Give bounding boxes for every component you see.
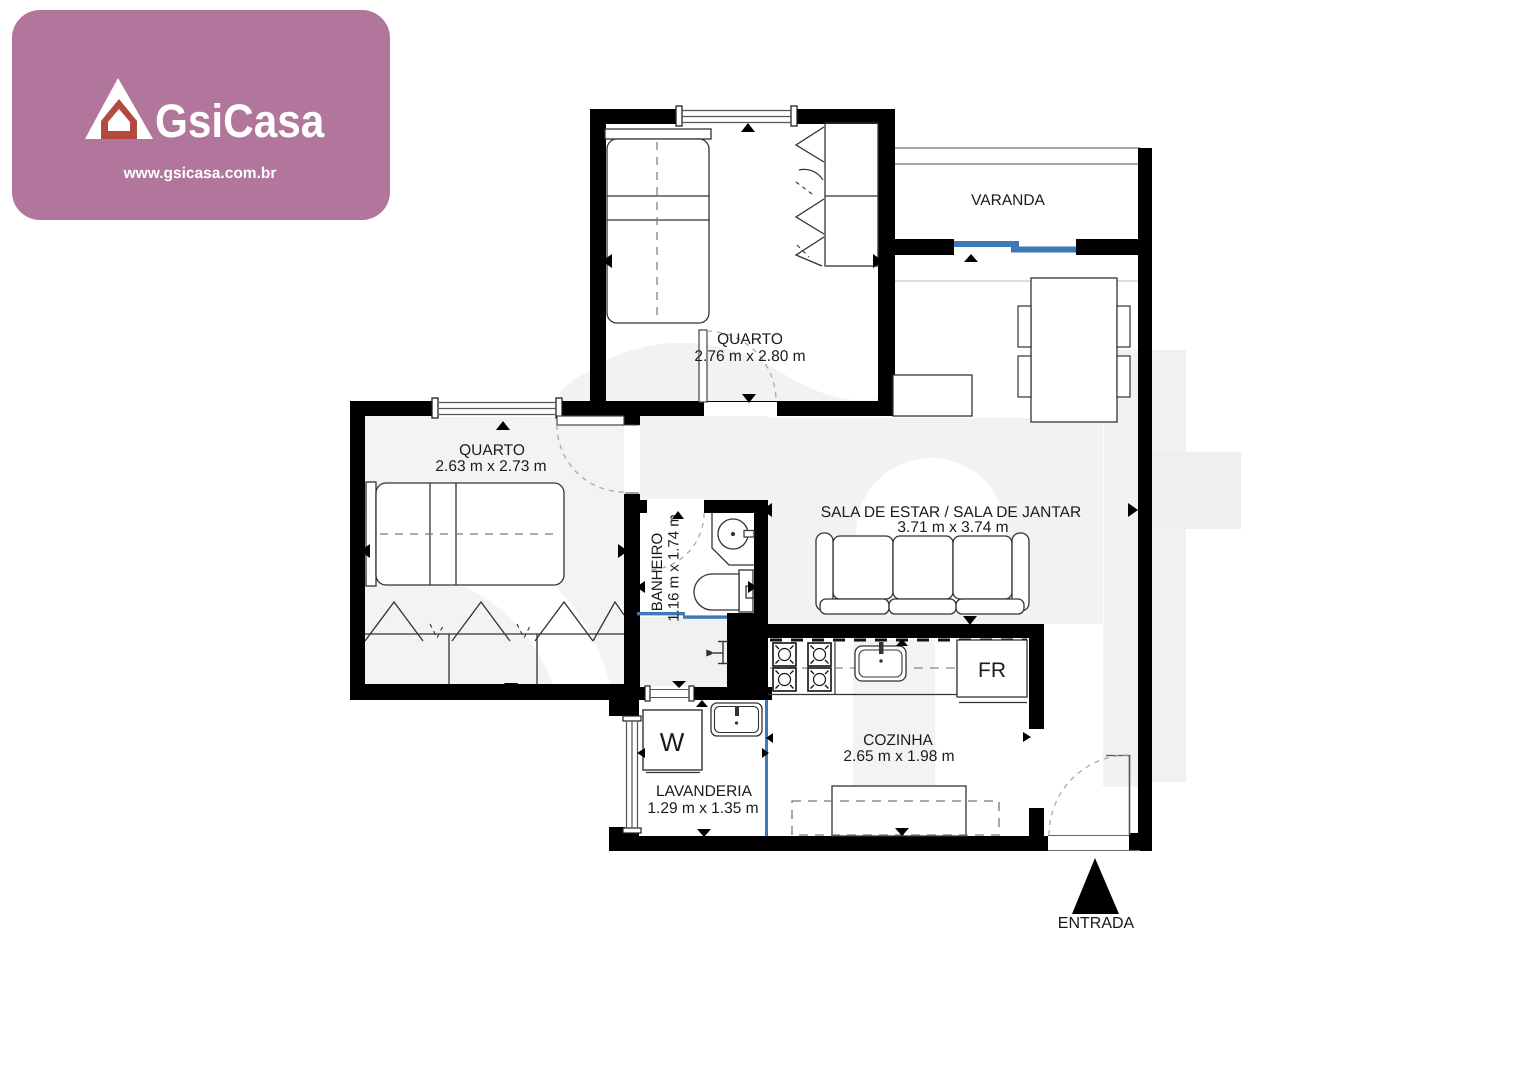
svg-text:VARANDA: VARANDA: [971, 192, 1045, 209]
svg-text:2.65 m x 1.98 m: 2.65 m x 1.98 m: [843, 748, 954, 765]
svg-text:FR: FR: [978, 659, 1006, 682]
svg-text:BANHEIRO: BANHEIRO: [649, 533, 666, 611]
svg-text:QUARTO: QUARTO: [459, 442, 525, 459]
svg-text:ENTRADA: ENTRADA: [1058, 915, 1135, 932]
svg-text:W: W: [660, 727, 685, 757]
svg-text:2.76 m x 2.80 m: 2.76 m x 2.80 m: [694, 348, 805, 365]
svg-text:3.71 m x 3.74 m: 3.71 m x 3.74 m: [897, 519, 1008, 536]
svg-text:COZINHA: COZINHA: [863, 732, 933, 749]
svg-text:www.gsicasa.com.br: www.gsicasa.com.br: [123, 165, 277, 182]
svg-text:QUARTO: QUARTO: [717, 331, 783, 348]
svg-text:GsiCasa: GsiCasa: [155, 94, 325, 147]
svg-text:LAVANDERIA: LAVANDERIA: [656, 783, 753, 800]
svg-text:1.29 m x 1.35 m: 1.29 m x 1.35 m: [647, 800, 758, 817]
svg-text:1.16 m x 1.74 m: 1.16 m x 1.74 m: [666, 514, 683, 622]
svg-text:2.63 m x 2.73 m: 2.63 m x 2.73 m: [435, 458, 546, 475]
